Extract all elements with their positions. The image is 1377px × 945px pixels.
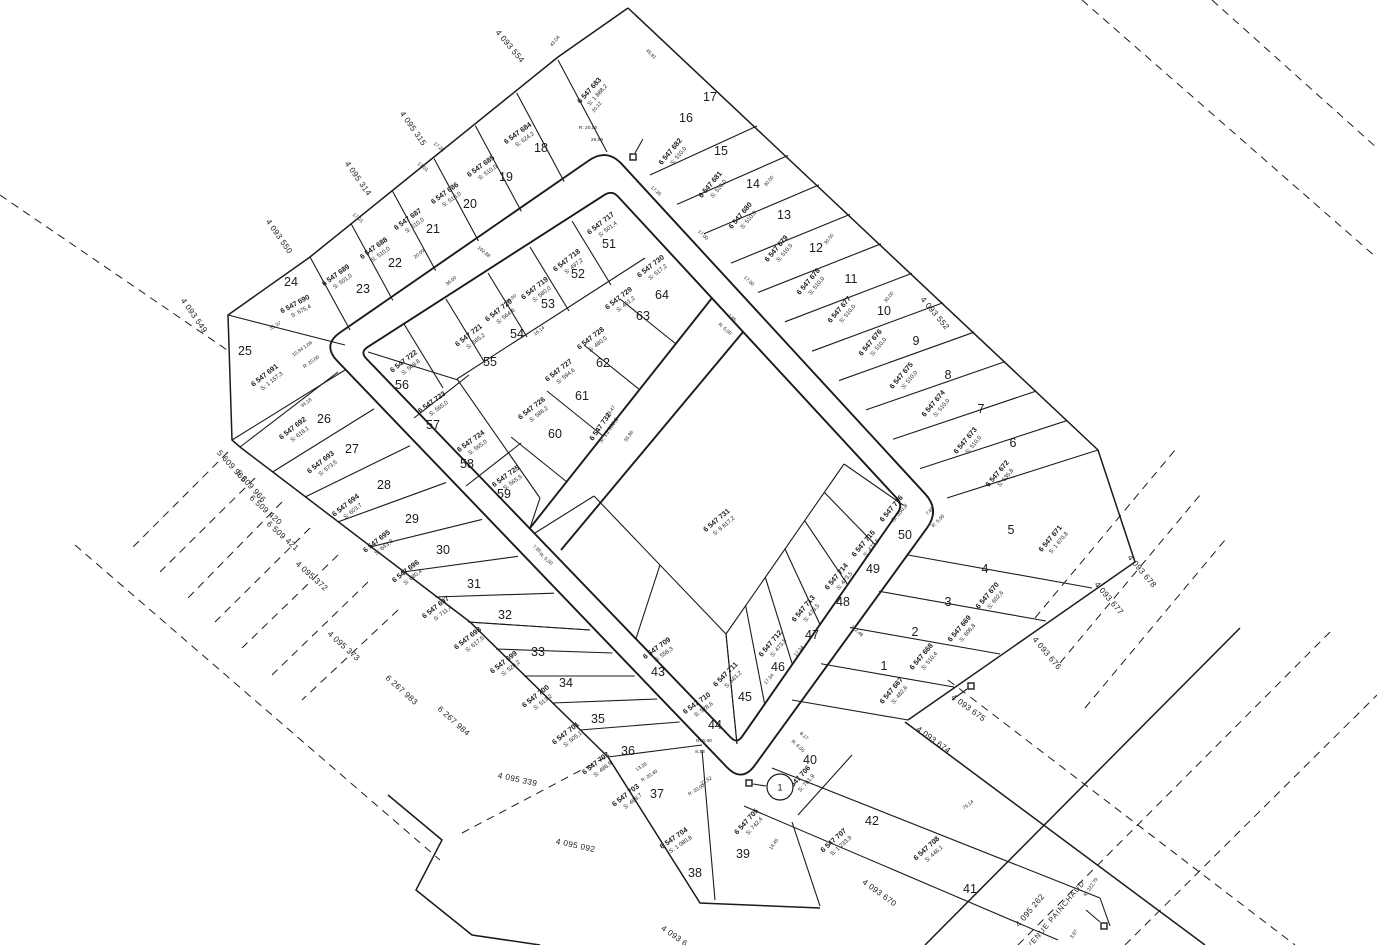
lot-index-38: 38 — [688, 866, 702, 880]
boundary-marker-icon — [630, 154, 636, 160]
lot-divider-line — [636, 565, 660, 639]
lot-label-6-547-682: 6 547 682S: 510,0 — [656, 136, 690, 172]
dimension-label: 16,14 — [533, 325, 547, 337]
lot-divider-line — [530, 498, 540, 528]
lot-label-6-547-732: 6 547 732S: 13 930,5 — [587, 410, 620, 447]
lot-label-6-547-713: 6 547 713S: 473,5 — [789, 593, 823, 629]
parcel-label: 4 093 675 — [950, 693, 988, 724]
lot-label-6-547-671: 6 547 671S: 1 670,8 — [1036, 523, 1070, 559]
lot-divider-line — [594, 496, 726, 634]
parcel-label: 4 093 554 — [494, 28, 527, 64]
context-dashed-line — [1060, 495, 1200, 663]
lot-index-44: 44 — [708, 718, 722, 732]
dimension-label: 102,88 — [476, 245, 492, 259]
parcel-label: 4 093 678 — [1126, 553, 1159, 589]
lot-label-6-547-701: 6 547 701S: 505,1 — [550, 720, 586, 753]
lot-label-6-547-687: 6 547 687S: 510,0 — [392, 206, 428, 239]
lot-label-6-547-675: 6 547 675S: 510,0 — [887, 360, 921, 396]
context-dashed-line — [1085, 540, 1225, 708]
dimension-label: R: 5,00 — [696, 738, 712, 744]
lot-label-6-547-716: 6 547 716S: 550,8 — [877, 493, 911, 529]
subdivision-boundary — [388, 795, 540, 945]
lot-index-10: 10 — [877, 304, 891, 318]
lot-index-56: 56 — [395, 378, 409, 392]
parcel-label: 4 095 373 — [326, 629, 362, 663]
lot-index-37: 37 — [650, 787, 664, 801]
lot-index-53: 53 — [541, 297, 555, 311]
lot-label-6-547-699: 6 547 699S: 520,2 — [488, 649, 524, 682]
lot-label-6-547-727: 6 547 727S: 594,6 — [543, 357, 579, 390]
dimension-label: 17,00 — [696, 229, 709, 242]
dimension-label: 22,52 — [700, 775, 714, 787]
middle-road-edge — [530, 298, 712, 528]
lot-divider-line — [1100, 898, 1110, 926]
lot-index-43: 43 — [651, 665, 665, 679]
cadastral-plan-svg: 6 547 667S: 482,616 547 668S: 510,426 54… — [0, 0, 1377, 945]
context-dashed-line — [1125, 695, 1377, 945]
lot-label-6-547-686: 6 547 686S: 510,0 — [429, 180, 465, 213]
lot-index-1: 1 — [881, 659, 888, 673]
parcel-label: 6 509 421 — [265, 519, 301, 553]
dimension-label: 17,28 — [432, 141, 445, 154]
lot-index-55: 55 — [483, 355, 497, 369]
lot-index-26: 26 — [317, 412, 331, 426]
lot-label-6-547-691: 6 547 691S: 1 157,3 — [249, 362, 285, 395]
lot-index-50: 50 — [898, 528, 912, 542]
lot-index-14: 14 — [746, 177, 760, 191]
lot-index-29: 29 — [405, 512, 419, 526]
lot-index-33: 33 — [531, 645, 545, 659]
marker-arrow — [753, 784, 766, 786]
lot-index-2: 2 — [912, 625, 919, 639]
lot-label-6-547-708: 6 547 708S: 446,1 — [911, 834, 946, 868]
lot-label-6-547-697: 6 547 697S: 711,4 — [420, 594, 456, 627]
subdivision-boundary — [628, 8, 1135, 720]
lot-label-6-547-720: 6 547 720S: 564,6 — [483, 297, 519, 330]
dimension-label: 83,47 — [605, 404, 617, 418]
marker-arrow — [1086, 910, 1100, 922]
lot-label-6-547-695: 6 547 695S: 643,3 — [361, 528, 397, 561]
lot-label-6-547-672: 6 547 672S: 535,8 — [983, 458, 1017, 494]
lot-index-11: 11 — [845, 272, 858, 286]
lot-index-36: 36 — [621, 744, 635, 758]
parcel-label: 4 093 674 — [915, 725, 953, 756]
lot-divider-line — [552, 699, 657, 703]
dimension-label: 26,96 — [591, 137, 604, 143]
context-dashed-line — [948, 680, 1295, 945]
lot-index-61: 61 — [575, 389, 589, 403]
lot-label-6-547-721: 6 547 721S: 565,2 — [453, 322, 489, 355]
dimension-label: 55,96 — [623, 429, 635, 443]
dimension-label: 75,14 — [962, 799, 976, 811]
dimension-label: 36,00 — [445, 275, 459, 287]
dimension-label: R: 20,40 — [640, 769, 659, 784]
dimension-label: 30,00 — [763, 175, 776, 188]
lot-divider-line — [908, 555, 1092, 588]
dimension-label: R: 5,00 — [717, 322, 733, 337]
lot-index-49: 49 — [866, 562, 880, 576]
context-dashed-line — [1082, 0, 1377, 258]
lot-index-41: 41 — [963, 882, 977, 896]
lot-index-25: 25 — [238, 344, 252, 358]
lot-label-6-547-731: 6 547 731S: 8 817,2 — [701, 506, 737, 540]
lot-label-6-547-704: 6 547 704S: 1 080,8 — [658, 825, 694, 858]
lot-divider-line — [920, 421, 1067, 469]
parcel-label: 4 095 315 — [398, 110, 428, 148]
lot-label-6-547-722: 6 547 722S: 569,8 — [388, 348, 424, 381]
parcel-label: 4 093 552 — [919, 295, 952, 331]
lot-divider-line — [792, 822, 820, 906]
dimension-label: 30,00 — [823, 233, 836, 246]
lot-index-16: 16 — [679, 111, 693, 125]
ring-road-inner-edge — [363, 193, 900, 741]
lot-index-32: 32 — [498, 608, 512, 622]
lot-divider-line — [947, 450, 1098, 498]
lot-label-6-547-700: 6 547 700S: 513,2 — [520, 683, 556, 716]
lot-label-6-547-729: 6 547 729S: 461,2 — [603, 285, 639, 318]
lot-divider-line — [535, 496, 594, 533]
lot-index-4: 4 — [982, 562, 989, 576]
lot-label-6-547-726: 6 547 726S: 586,2 — [516, 395, 552, 428]
dimension-label: R: 6,00 — [790, 739, 806, 754]
dimension-label: R: 20,00 — [302, 354, 321, 370]
lot-index-59: 59 — [497, 487, 511, 501]
boundary-marker-icon — [968, 683, 974, 689]
context-dashed-line — [75, 545, 440, 860]
lot-index-40: 40 — [803, 753, 817, 767]
dimension-label: R: 5,00 — [538, 552, 554, 567]
lot-index-28: 28 — [377, 478, 391, 492]
lot-label-6-547-690: 6 547 690S: 675,4 — [279, 292, 315, 322]
lot-index-31: 31 — [467, 577, 481, 591]
lot-label-6-547-715: 6 547 715S: 473,5 — [849, 528, 883, 564]
dimension-label: R: 20,00 — [579, 125, 598, 131]
lot-divider-line — [821, 664, 954, 687]
lot-divider-line — [772, 768, 1100, 898]
lot-label-6-547-685: 6 547 685S: 510,0 — [465, 153, 501, 186]
lot-index-9: 9 — [913, 334, 920, 348]
lot-index-8: 8 — [945, 368, 952, 382]
lot-index-46: 46 — [771, 660, 785, 674]
context-dashed-line — [242, 555, 338, 648]
lot-index-7: 7 — [978, 402, 985, 416]
lot-label-6-547-702: 6 547 702S: 486,9 — [580, 750, 616, 783]
lot-label-6-547-712: 6 547 712S: 473,5 — [756, 628, 790, 664]
parcel-label: 4 093 670 — [861, 878, 899, 909]
dimension-label: 10,94 1,06 — [291, 340, 314, 358]
lot-index-60: 60 — [548, 427, 562, 441]
lot-label-6-547-689: 6 547 689S: 501,0 — [320, 262, 356, 295]
lot-index-54: 54 — [510, 327, 524, 341]
dimension-label: 30,00 — [883, 291, 896, 304]
context-dashed-line — [132, 452, 228, 548]
dimension-label: 7,85 — [925, 506, 936, 517]
lot-divider-line — [792, 700, 908, 720]
lot-divider-line — [468, 622, 590, 630]
lot-index-64: 64 — [655, 288, 669, 302]
lot-divider-line — [435, 593, 554, 597]
parcel-label: 6 267 984 — [436, 704, 472, 738]
lot-index-51: 51 — [602, 237, 616, 251]
lot-label-6-547-698: 6 547 698S: 617,5 — [452, 625, 488, 658]
boundary-marker-icon — [746, 780, 752, 786]
lot-index-17: 17 — [703, 90, 717, 104]
dimension-label: 3,97 — [1069, 929, 1080, 940]
parcel-label: 4 093 549 — [179, 297, 209, 335]
lot-index-35: 35 — [591, 712, 605, 726]
parcel-label: 4 095 339 — [497, 771, 538, 788]
lot-index-57: 57 — [426, 418, 440, 432]
lot-label-6-547-730: 6 547 730S: 517,2 — [635, 253, 671, 286]
lot-index-19: 19 — [499, 170, 513, 184]
lot-index-27: 27 — [345, 442, 359, 456]
dimension-label: 14,45 — [768, 837, 780, 851]
lot-label-6-547-693: 6 547 693S: 573,5 — [305, 449, 341, 482]
lot-divider-line — [228, 315, 345, 345]
dimension-label: 45,81 — [644, 48, 657, 61]
lot-divider-line — [726, 464, 844, 634]
dimension-label: 8,13 — [695, 749, 705, 755]
lot-index-24: 24 — [284, 275, 298, 289]
lot-index-20: 20 — [463, 197, 477, 211]
lot-index-12: 12 — [809, 241, 823, 255]
lot-index-34: 34 — [559, 676, 573, 690]
parcel-label: 4 093 550 — [264, 218, 294, 256]
context-dashed-line — [160, 478, 255, 572]
lot-divider-line — [893, 391, 1036, 439]
lot-index-42: 42 — [865, 814, 879, 828]
lot-label-6-547-684: 6 547 684S: 624,2 — [502, 120, 538, 153]
lot-index-21: 21 — [426, 222, 440, 236]
lot-label-6-547-674: 6 547 674S: 510,0 — [919, 388, 953, 424]
context-dashed-line — [1212, 0, 1377, 148]
lot-index-30: 30 — [436, 543, 450, 557]
lot-label-6-547-681: 6 547 681S: 510,0 — [696, 169, 730, 205]
lot-index-5: 5 — [1008, 523, 1015, 537]
parcel-label: 4 095 314 — [343, 160, 373, 198]
parcel-label: 4 093 677 — [1093, 580, 1126, 616]
lot-index-13: 13 — [777, 208, 791, 222]
context-dashed-line — [0, 195, 230, 352]
subdivision-boundary — [228, 8, 628, 757]
lot-index-58: 58 — [460, 457, 474, 471]
lot-label-6-547-673: 6 547 673S: 510,0 — [951, 425, 985, 461]
parcel-label: 4 095 372 — [294, 559, 330, 593]
dimension-label: 17,00 — [742, 275, 755, 288]
lot-divider-line — [702, 750, 715, 900]
boundary-marker-icon — [1101, 923, 1107, 929]
lot-label-6-547-683: 6 547 683S: 1 888,2 — [575, 75, 609, 110]
lot-label-6-547-680: 6 547 680S: 510,0 — [726, 200, 760, 236]
lot-label-6-547-668: 6 547 668S: 510,4 — [907, 641, 941, 677]
lot-index-15: 15 — [714, 144, 728, 158]
lot-label-6-547-670: 6 547 670S: 602,6 — [973, 580, 1007, 616]
lot-index-63: 63 — [636, 309, 650, 323]
lot-label-6-547-696: 6 547 696S: 680,4 — [390, 558, 426, 591]
lot-label-6-547-705: 6 547 705S: 742,4 — [732, 806, 766, 841]
lot-divider-line — [744, 806, 1058, 940]
dimension-label: 7,85 — [726, 313, 737, 324]
lot-index-47: 47 — [805, 628, 819, 642]
lot-divider-line — [704, 185, 819, 234]
marker-arrow — [635, 139, 643, 153]
parcel-label: 4 093 676 — [1031, 635, 1064, 671]
lot-label-6-547-678: 6 547 678S: 510,0 — [794, 266, 828, 302]
dimension-label: 17,34 — [763, 673, 776, 686]
lot-index-62: 62 — [596, 356, 610, 370]
dimension-label: 34,18 — [300, 397, 314, 409]
cadastral-plan-canvas: 6 547 667S: 482,616 547 668S: 510,426 54… — [0, 0, 1377, 945]
legend-circle-label: 1 — [777, 783, 782, 794]
lot-label-6-547-677: 6 547 677S: 510,0 — [825, 294, 859, 330]
lot-index-52: 52 — [571, 267, 585, 281]
dimension-label: 43,04 — [549, 35, 562, 48]
dimension-label: 35,37 — [269, 320, 283, 331]
lot-index-3: 3 — [945, 595, 952, 609]
dimension-label: 8,17 — [798, 731, 809, 742]
lot-index-48: 48 — [836, 595, 850, 609]
lot-index-6: 6 — [1010, 436, 1017, 450]
lot-index-22: 22 — [388, 256, 402, 270]
lot-label-6-547-667: 6 547 667S: 482,6 — [877, 675, 911, 711]
lot-label-6-547-707: 6 547 707S: 1 233,9 — [818, 826, 853, 860]
dimension-label: 13,29 — [635, 761, 649, 773]
lot-label-6-547-728: 6 547 728S: 480,0 — [575, 325, 611, 358]
lot-index-18: 18 — [534, 141, 548, 155]
lot-label-6-547-692: 6 547 692S: 618,1 — [277, 415, 313, 448]
lot-index-39: 39 — [736, 847, 750, 861]
parcel-label: 4 095 092 — [555, 837, 596, 854]
parcel-label: 4 093 6 — [660, 924, 690, 945]
lot-label-6-547-669: 6 547 669S: 606,8 — [945, 613, 979, 649]
lot-index-45: 45 — [738, 690, 752, 704]
lot-index-23: 23 — [356, 282, 370, 296]
parcel-label: 6 267 983 — [384, 673, 420, 707]
